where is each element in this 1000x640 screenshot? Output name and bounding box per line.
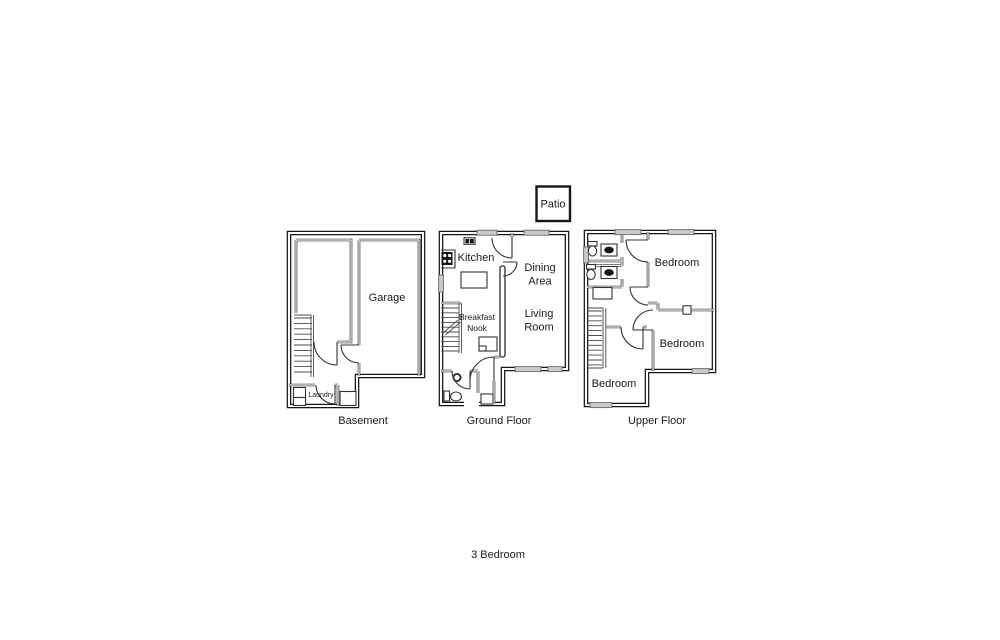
bedroom-label-top-right: Bedroom [655,257,700,269]
laundry-appliance-icon [294,388,306,398]
ground-floor-plan: Kitchen Dining Area Living Room Breakfas… [439,230,567,427]
partition-wall [500,266,505,357]
kitchen-sink-icon [464,238,475,245]
garage-label: Garage [369,292,406,304]
dining-label-line2: Area [528,276,552,288]
bedroom-label-mid-right: Bedroom [660,338,705,350]
hall-closet [593,288,612,300]
toilet-icon [587,265,596,280]
basement-plan: Garage Laundry Basement [289,233,423,427]
kitchen-island [461,272,487,288]
breakfast-label-line2: Nook [467,323,488,333]
entry-step [481,394,493,404]
bedroom-label-bottom-left: Bedroom [592,378,637,390]
patio-label: Patio [540,199,565,211]
living-label-line1: Living [525,308,554,320]
closet-block [683,306,691,314]
front-door-opening [464,400,479,408]
basement-stairs-icon [294,315,314,377]
breakfast-label-line1: Breakfast [459,312,496,322]
upper-floor-plan: Bedroom Bedroom Bedroom Upper Floor [584,230,714,427]
toilet-icon [444,391,462,401]
laundry-appliance-icon [340,392,356,406]
floorplan-diagram: Patio Garage Laundry Basement [0,0,1000,640]
kitchen-label: Kitchen [458,252,495,264]
floorplan-page: Patio Garage Laundry Basement [0,0,1000,640]
upper-floor-caption: Upper Floor [628,415,686,427]
upper-door-arcs [621,240,653,349]
ground-floor-caption: Ground Floor [467,415,532,427]
upper-stairs-icon [587,308,606,368]
page-title: 3 Bedroom [471,549,525,561]
living-label-line2: Room [524,322,553,334]
nook-table-icon [479,346,486,351]
patio: Patio [537,187,571,222]
laundry-label: Laundry [308,392,334,399]
basement-caption: Basement [338,415,388,427]
ground-stairs-icon [441,303,462,353]
dining-label-line1: Dining [524,262,555,274]
laundry-appliance-icon [294,398,306,406]
toilet-icon [588,242,597,257]
vanity-sink-icon [601,267,617,279]
stove-icon [442,252,453,265]
vanity-sink-icon [601,244,617,256]
